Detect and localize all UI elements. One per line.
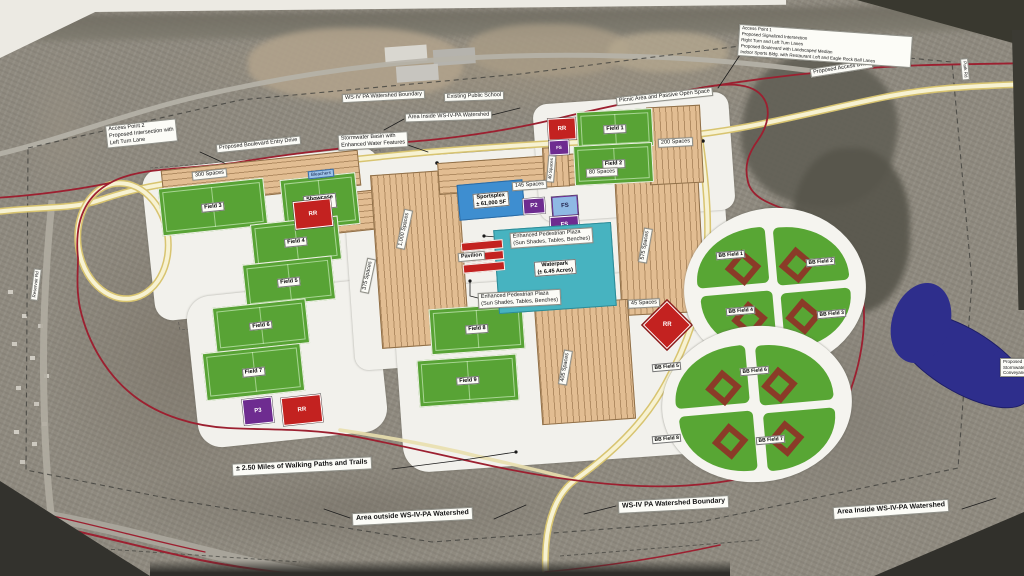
field-2: Field 2 xyxy=(573,142,654,186)
infield xyxy=(794,307,814,327)
waterpark-label: Waterpark(± 6.45 Acres) xyxy=(534,259,576,277)
restroom-marker: RR xyxy=(547,117,576,140)
field-6-label: Field 6 xyxy=(249,320,273,331)
infield xyxy=(770,375,790,395)
cleared-land-patch xyxy=(248,28,463,100)
field-4-label: Field 4 xyxy=(284,237,308,248)
parking-count: 80 Spaces xyxy=(586,167,618,178)
parking-count: 200 Spaces xyxy=(658,137,693,148)
sportsplex-label: Sportsplex± 61,000 SF xyxy=(472,191,509,209)
infield xyxy=(720,432,740,452)
cleared-land-patch xyxy=(608,32,728,72)
pavilion-p3-marker: P3 xyxy=(242,397,275,426)
field-1-label: Field 1 xyxy=(603,124,627,134)
field-7-label: Field 7 xyxy=(241,367,265,378)
houses xyxy=(8,290,13,294)
site-plan-photo: Field 3 ShowcaseField Field 4 Field 5 Fi… xyxy=(0,0,1024,576)
restroom-marker: RR xyxy=(293,198,334,230)
stormwater-conveyance-note: ProposedStormwaterConveyance xyxy=(1000,358,1024,377)
restroom-marker: RR xyxy=(281,394,324,426)
photo-edge-bottom xyxy=(150,560,730,576)
field-3-label: Field 3 xyxy=(201,202,225,213)
parking-lot xyxy=(534,299,636,425)
parking-count: 45 Spaces xyxy=(628,298,660,309)
field-8-label: Field 8 xyxy=(465,324,489,334)
field-9: Field 9 xyxy=(416,354,519,408)
infield xyxy=(733,258,753,278)
food-service-marker: FS xyxy=(549,139,570,155)
field-9-label: Field 9 xyxy=(456,375,480,385)
infield xyxy=(787,255,807,275)
food-service-marker: FS xyxy=(551,195,578,217)
existing-school-buildings xyxy=(384,45,427,64)
pavilion-p2-marker: P2 xyxy=(522,197,545,214)
bb-quadrant xyxy=(773,222,850,286)
cleared-land-patch xyxy=(468,24,628,76)
field-5-label: Field 5 xyxy=(277,277,301,288)
infield xyxy=(714,378,734,398)
pavilion-strip xyxy=(463,261,506,274)
